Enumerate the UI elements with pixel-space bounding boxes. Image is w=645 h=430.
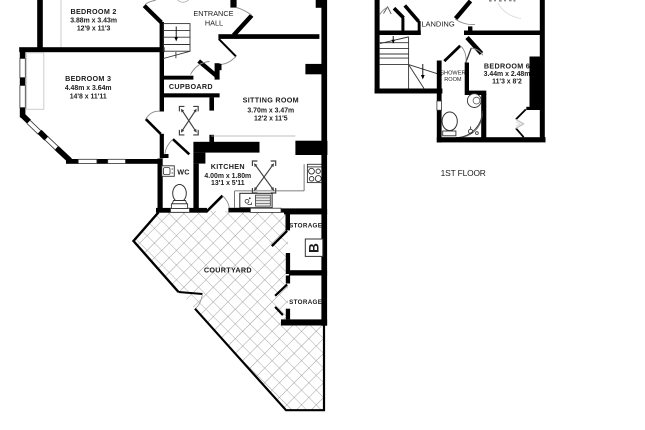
svg-text:BEDROOM 3: BEDROOM 3: [65, 74, 111, 83]
svg-text:ROOM: ROOM: [444, 77, 462, 83]
svg-text:WC: WC: [177, 167, 190, 176]
svg-text:1ST FLOOR: 1ST FLOOR: [441, 168, 486, 178]
svg-text:HALL: HALL: [205, 18, 223, 27]
svg-text:ENTRANCE: ENTRANCE: [193, 9, 233, 18]
svg-text:STORAGE: STORAGE: [289, 222, 322, 229]
svg-text:BEDROOM 2: BEDROOM 2: [70, 7, 116, 16]
svg-text:11'3 x 8'2: 11'3 x 8'2: [492, 79, 522, 86]
svg-text:12'2 x 11'5: 12'2 x 11'5: [254, 116, 288, 123]
svg-text:SHOWER: SHOWER: [440, 70, 465, 76]
svg-text:12'9 x 11'3: 12'9 x 11'3: [77, 25, 111, 32]
svg-text:COURTYARD: COURTYARD: [204, 266, 252, 275]
svg-text:STORAGE: STORAGE: [289, 299, 322, 306]
svg-text:4.48m x 3.64m: 4.48m x 3.64m: [65, 85, 112, 92]
svg-text:SITTING ROOM: SITTING ROOM: [243, 96, 299, 105]
svg-text:LANDING: LANDING: [421, 20, 455, 29]
svg-text:3.44m x 2.48m: 3.44m x 2.48m: [484, 71, 531, 78]
svg-text:B: B: [306, 243, 321, 253]
svg-text:KITCHEN: KITCHEN: [211, 162, 245, 171]
svg-text:14'8 x 11'11: 14'8 x 11'11: [70, 93, 107, 100]
svg-text:3.70m x 3.47m: 3.70m x 3.47m: [247, 107, 294, 114]
svg-text:3.88m x 3.43m: 3.88m x 3.43m: [70, 17, 117, 24]
svg-text:CUPBOARD: CUPBOARD: [169, 82, 213, 91]
svg-text:BEDROOM 6: BEDROOM 6: [484, 62, 530, 71]
svg-text:13'1 x 5'11: 13'1 x 5'11: [211, 180, 245, 187]
